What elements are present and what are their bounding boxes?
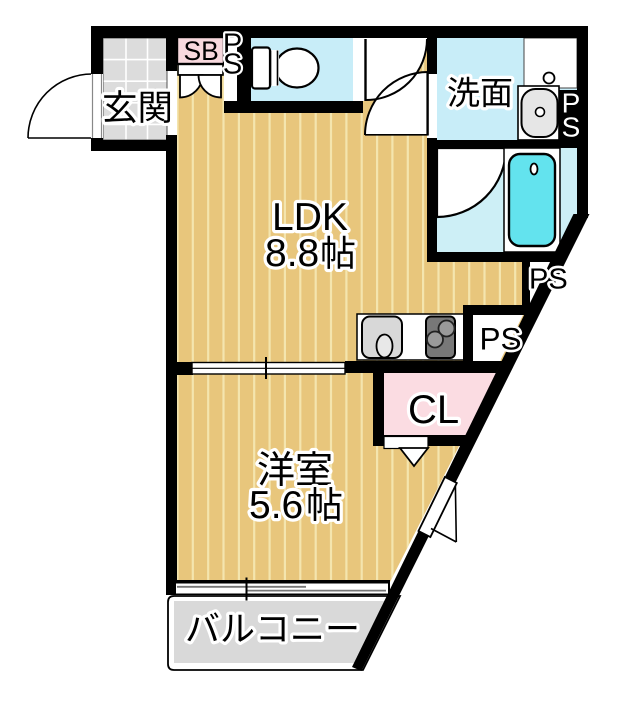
svg-text:5.6: 5.6 — [249, 484, 303, 527]
svg-text:PS: PS — [480, 321, 522, 357]
svg-text:PS: PS — [529, 264, 568, 296]
svg-text:CL: CL — [408, 388, 459, 432]
svg-text:8.8: 8.8 — [265, 232, 319, 275]
svg-text:S: S — [223, 49, 242, 81]
svg-text:SB: SB — [184, 36, 219, 66]
svg-text:S: S — [562, 112, 581, 143]
